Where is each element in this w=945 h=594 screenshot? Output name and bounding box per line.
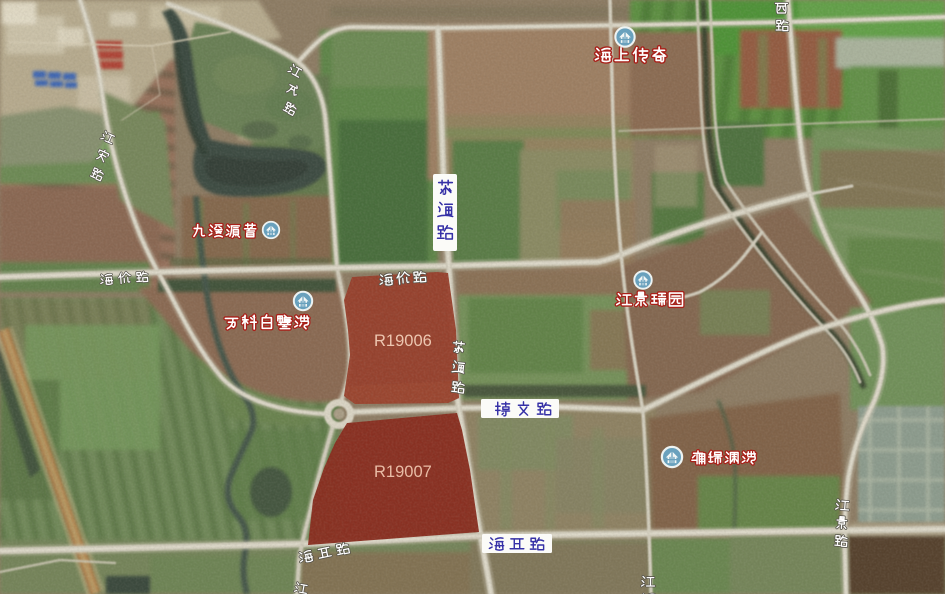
svg-text:R19006: R19006 <box>374 332 432 350</box>
svg-text:R19007: R19007 <box>374 463 432 481</box>
